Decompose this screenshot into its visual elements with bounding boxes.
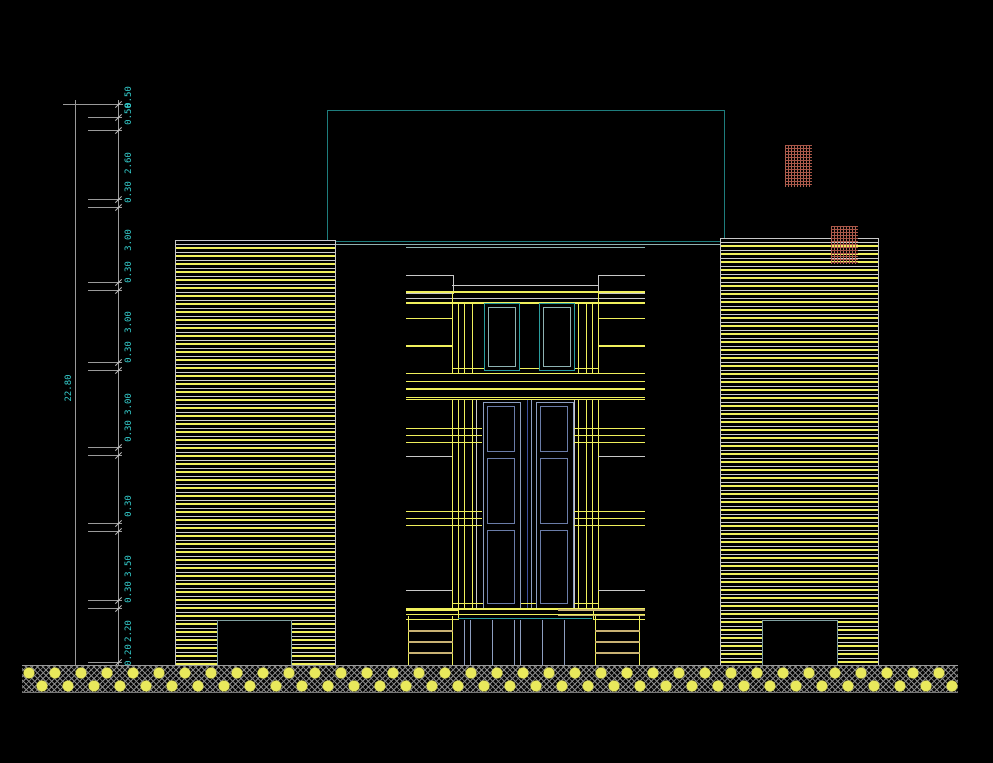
cad-line <box>568 518 645 519</box>
portal-pilaster-line <box>578 302 579 610</box>
left-bay <box>335 247 406 665</box>
dim-label: 0.30 <box>124 181 134 203</box>
cad-line <box>405 298 645 299</box>
dim-label: 2.20 <box>124 620 134 642</box>
door-sub-panel <box>540 530 568 604</box>
cad-line <box>476 398 477 610</box>
dim-label: 3.00 <box>124 393 134 415</box>
cad-line <box>405 428 482 429</box>
right-wing <box>720 238 879 666</box>
cad-line <box>598 318 645 319</box>
pedestal-rung <box>408 630 453 632</box>
dim-label: 0.30 <box>124 581 134 603</box>
dim-label: 2.60 <box>124 152 134 174</box>
cad-line <box>405 345 452 347</box>
cad-line <box>405 302 645 304</box>
portal-window <box>539 303 575 371</box>
door-sub-panel <box>540 406 568 452</box>
dim-label: 3.00 <box>124 229 134 251</box>
cad-drawing-canvas: 0.50 0.50 2.60 0.30 3.00 0.30 3.00 0.30 … <box>0 0 993 763</box>
entry-glazing-mullion <box>464 620 465 665</box>
pedestal-rung <box>595 652 640 654</box>
cad-line <box>452 603 598 604</box>
overall-dimension-label: 22.80 <box>64 374 74 401</box>
dim-label: 0.30 <box>124 495 134 517</box>
pedestal-rung <box>408 641 453 643</box>
dim-label: 0.50 <box>124 103 134 125</box>
cad-line <box>405 456 452 457</box>
cad-line <box>405 511 482 512</box>
door-sub-panel <box>487 458 515 524</box>
cad-line <box>568 442 645 443</box>
door-sub-panel <box>487 530 515 604</box>
cad-line <box>568 428 645 429</box>
storefront-opening <box>217 620 292 666</box>
portal-pilaster-line <box>464 302 465 610</box>
cad-line <box>568 525 645 526</box>
entry-glazing-mullion <box>520 620 521 665</box>
portal-pylon-edge <box>452 291 453 610</box>
cad-line <box>405 435 482 436</box>
portal-pilaster-line <box>472 302 473 610</box>
dim-label: 0.20 <box>124 644 134 666</box>
entry-glazing-mullion <box>514 620 515 665</box>
portal-window <box>484 303 520 371</box>
cad-line <box>405 291 645 293</box>
portal-pylon-edge <box>598 291 599 610</box>
cad-line <box>398 381 651 382</box>
cad-line <box>405 397 645 398</box>
entry-glazing-mullion <box>470 620 471 665</box>
left-wing <box>175 240 336 666</box>
pedestal-rung <box>595 641 640 643</box>
dim-label: 0.30 <box>124 341 134 363</box>
cad-line <box>405 318 452 319</box>
right-bay <box>645 247 721 665</box>
cad-line <box>568 511 645 512</box>
overall-dimension-line <box>75 100 76 682</box>
parapet-line <box>327 244 723 245</box>
cad-line <box>452 285 598 286</box>
brick-chimney <box>785 145 812 187</box>
entry-glazing-mullion <box>564 620 565 665</box>
cad-line <box>405 525 482 526</box>
penthouse <box>327 110 725 242</box>
sill-line <box>452 368 598 369</box>
pedestal-rung <box>408 652 453 654</box>
storefront-opening <box>762 620 838 666</box>
window-inner-frame <box>543 307 571 367</box>
portal-pilaster-line <box>586 302 587 610</box>
entry-glazing-mullion <box>542 620 543 665</box>
brick-chimney <box>831 226 858 264</box>
chain-dimension-line <box>118 100 119 682</box>
door-frame-line <box>527 398 528 610</box>
cad-line <box>568 435 645 436</box>
window-inner-frame <box>488 307 516 367</box>
cad-line <box>574 398 575 610</box>
balcony-band <box>398 373 652 400</box>
entry-glazing-mullion <box>492 620 493 665</box>
ground-hatch <box>22 665 958 693</box>
cad-line <box>598 456 645 457</box>
cad-line <box>398 388 651 390</box>
cad-line <box>405 518 482 519</box>
door-sub-panel <box>540 458 568 524</box>
cad-line <box>598 590 645 591</box>
door-frame-line <box>531 398 532 610</box>
cad-line <box>405 442 482 443</box>
dim-label: 0.30 <box>124 261 134 283</box>
door-sub-panel <box>487 406 515 452</box>
cad-line <box>405 590 452 591</box>
dim-label: 3.50 <box>124 555 134 577</box>
portal-pilaster-line <box>592 302 593 610</box>
pedestal-rung <box>595 630 640 632</box>
dim-label: 3.00 <box>124 311 134 333</box>
portal-pilaster-line <box>458 302 459 610</box>
dim-label: 0.30 <box>124 420 134 442</box>
cad-line <box>598 345 645 347</box>
entry-glazing-head <box>458 618 592 619</box>
